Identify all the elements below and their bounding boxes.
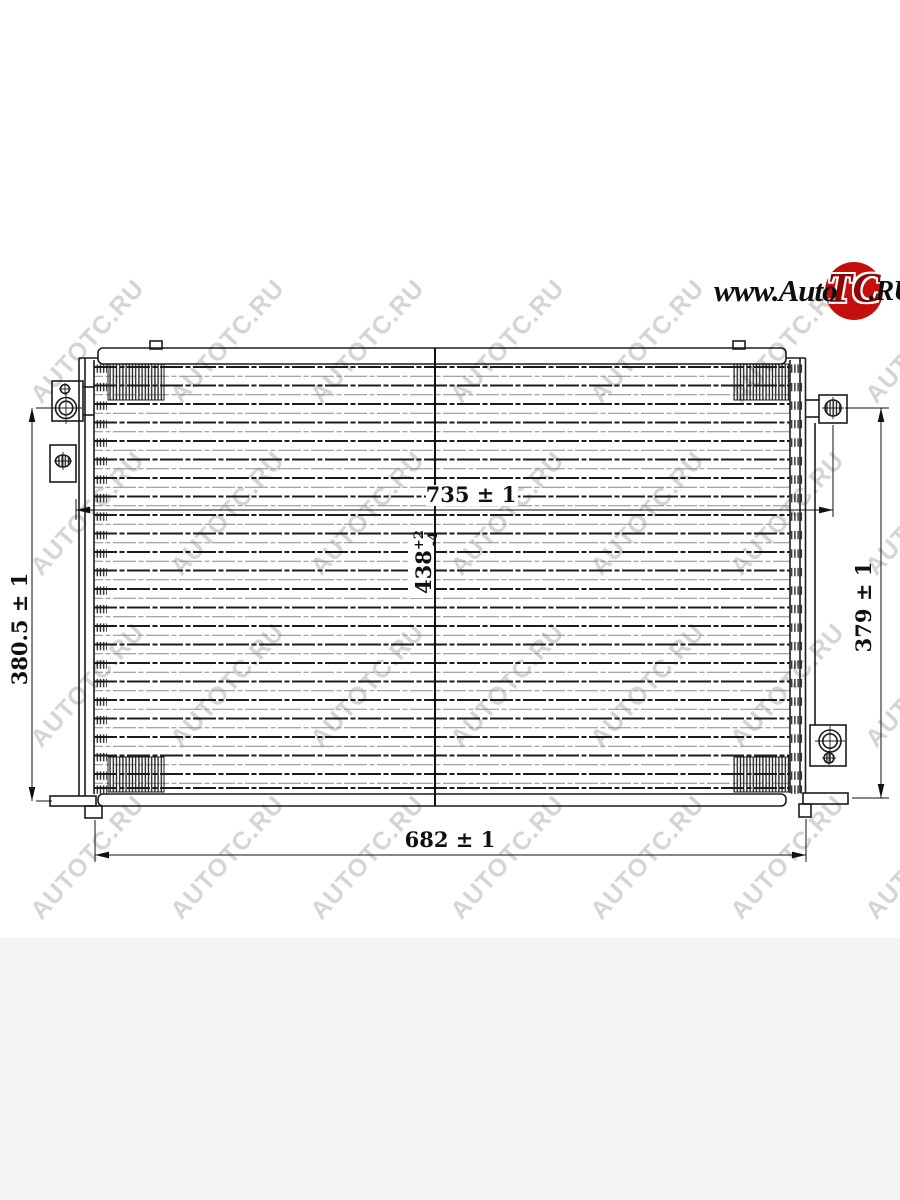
product-image-page: AUTOTC.RUAUTOTC.RUAUTOTC.RUAUTOTC.RUAUTO… bbox=[0, 0, 900, 1200]
tube-end-ticks bbox=[94, 383, 107, 391]
tube-end-ticks bbox=[790, 549, 803, 557]
tube-end-ticks bbox=[94, 364, 107, 372]
dim-left-height-label: 380.5 ± 1 bbox=[7, 573, 32, 686]
dim-upper-width-label: 735 ± 1 bbox=[426, 482, 517, 507]
tube-end-ticks bbox=[790, 716, 803, 724]
left-bottom-flange bbox=[50, 796, 96, 806]
left-pipe-bracket bbox=[52, 381, 94, 421]
tube-end-ticks bbox=[790, 734, 803, 742]
tube-end-ticks bbox=[94, 401, 107, 409]
bottom-header-bar bbox=[98, 794, 786, 806]
tube-end-ticks bbox=[790, 531, 803, 539]
tube-end-ticks bbox=[790, 605, 803, 613]
tube-end-ticks bbox=[94, 438, 107, 446]
tube-end-ticks bbox=[94, 512, 107, 520]
tube-end-ticks bbox=[94, 660, 107, 668]
right-upper-bracket bbox=[806, 395, 847, 423]
tube-end-ticks bbox=[790, 753, 803, 761]
tube-end-ticks bbox=[94, 697, 107, 705]
tube-end-ticks bbox=[790, 642, 803, 650]
tube-end-ticks bbox=[790, 771, 803, 779]
dim-bottom-width-label: 682 ± 1 bbox=[405, 827, 496, 852]
top-header-bar bbox=[98, 348, 786, 364]
tube-end-ticks bbox=[94, 642, 107, 650]
tube-end-ticks bbox=[94, 785, 107, 793]
tube-end-ticks bbox=[94, 531, 107, 539]
tube-end-ticks bbox=[94, 420, 107, 428]
dim-right-height-label: 379 ± 1 bbox=[851, 562, 876, 653]
tube-end-ticks bbox=[790, 623, 803, 631]
tube-end-ticks bbox=[94, 771, 107, 779]
logo-text-prefix: www.Auto bbox=[714, 273, 837, 309]
right-bottom-flange bbox=[803, 793, 848, 804]
tube-end-ticks bbox=[790, 679, 803, 687]
tube-end-ticks bbox=[790, 697, 803, 705]
tube-end-ticks bbox=[790, 420, 803, 428]
right-foot bbox=[799, 804, 811, 817]
bottom-gray-panel bbox=[0, 938, 900, 1200]
tube-end-ticks bbox=[94, 623, 107, 631]
autotc-logo: www.Auto TC .RU bbox=[714, 256, 900, 326]
tube-end-ticks bbox=[94, 716, 107, 724]
condenser-technical-drawing: 735 ± 1 438+2-4 380.5 ± 1 379 ± 1 68 bbox=[0, 330, 900, 890]
tube-end-ticks bbox=[94, 457, 107, 465]
tube-end-ticks bbox=[790, 475, 803, 483]
core-tube-rows bbox=[94, 364, 803, 793]
tube-end-ticks bbox=[94, 549, 107, 557]
tube-end-ticks bbox=[94, 734, 107, 742]
tube-end-ticks bbox=[94, 753, 107, 761]
tube-end-ticks bbox=[94, 568, 107, 576]
tube-end-ticks bbox=[790, 494, 803, 502]
tube-end-ticks bbox=[94, 605, 107, 613]
tube-end-ticks bbox=[94, 494, 107, 502]
tube-end-ticks bbox=[790, 401, 803, 409]
tube-end-ticks bbox=[790, 785, 803, 793]
tube-end-ticks bbox=[790, 438, 803, 446]
tube-end-ticks bbox=[790, 364, 803, 372]
tube-end-ticks bbox=[790, 660, 803, 668]
tube-end-ticks bbox=[790, 568, 803, 576]
tube-end-ticks bbox=[790, 512, 803, 520]
tube-end-ticks bbox=[790, 383, 803, 391]
tube-end-ticks bbox=[94, 475, 107, 483]
tube-end-ticks bbox=[790, 586, 803, 594]
dim-center-height-label: 438+2-4 bbox=[411, 530, 441, 594]
right-pipe-bracket bbox=[810, 725, 846, 766]
tube-end-ticks bbox=[94, 679, 107, 687]
left-foot bbox=[85, 806, 102, 818]
tube-end-ticks bbox=[94, 586, 107, 594]
tube-end-ticks bbox=[790, 457, 803, 465]
logo-text-suffix: .RU bbox=[869, 275, 900, 308]
